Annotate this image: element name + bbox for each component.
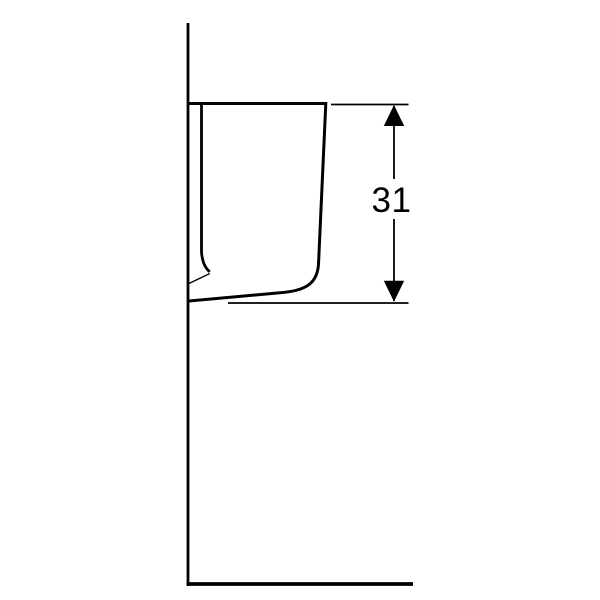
technical-drawing-canvas: 31 bbox=[0, 0, 600, 600]
fixture-inner-back-line bbox=[202, 105, 210, 272]
dimension-value-label: 31 bbox=[372, 181, 412, 220]
side-view-dimension-diagram: 31 bbox=[0, 0, 600, 600]
dimension-arrow-down-icon bbox=[384, 281, 404, 302]
dimension-arrow-up-icon bbox=[384, 105, 404, 126]
fixture-inner-bottom-line bbox=[189, 274, 210, 284]
